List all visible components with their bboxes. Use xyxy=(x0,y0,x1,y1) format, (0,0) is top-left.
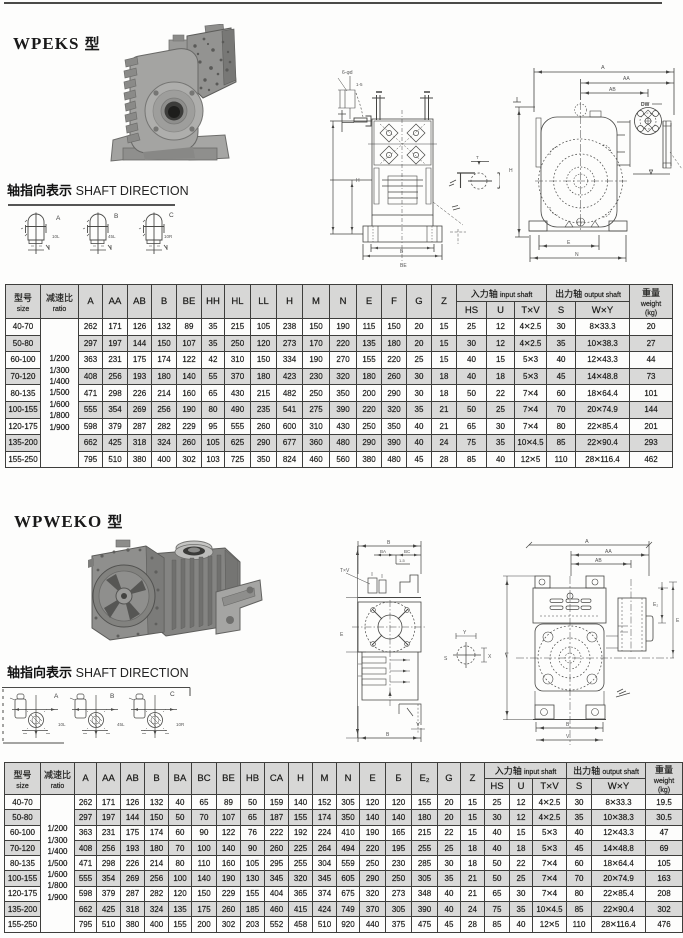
svg-text:E: E xyxy=(340,632,344,638)
svg-text:1-5: 1-5 xyxy=(399,558,406,563)
svg-text:H: H xyxy=(509,168,513,174)
svg-text:S: S xyxy=(444,656,448,662)
svg-text:B: B xyxy=(400,249,404,255)
svg-text:AB: AB xyxy=(609,87,616,93)
svg-text:C: C xyxy=(169,212,174,219)
svg-text:X: X xyxy=(488,654,492,660)
svg-text:B: B xyxy=(566,722,570,728)
svg-text:N: N xyxy=(575,252,579,258)
svg-text:BC: BC xyxy=(404,549,411,554)
svg-text:A: A xyxy=(56,215,61,222)
svg-text:B: B xyxy=(110,693,114,700)
svg-text:DW: DW xyxy=(641,102,650,108)
svg-text:A: A xyxy=(601,65,605,71)
svg-text:T×V: T×V xyxy=(340,568,350,574)
svg-text:10R: 10R xyxy=(164,234,173,239)
svg-text:E: E xyxy=(567,240,571,246)
svg-text:E₂: E₂ xyxy=(653,602,658,608)
svg-text:6-φd: 6-φd xyxy=(342,70,353,76)
svg-text:H: H xyxy=(356,178,360,184)
svg-text:BA: BA xyxy=(380,549,386,554)
svg-text:45L: 45L xyxy=(108,234,116,239)
svg-text:1-5: 1-5 xyxy=(356,82,363,87)
svg-text:V: V xyxy=(566,734,570,740)
svg-text:A: A xyxy=(54,693,59,700)
svg-text:B: B xyxy=(114,213,118,220)
svg-text:BE: BE xyxy=(400,263,407,269)
svg-text:A: A xyxy=(585,539,589,545)
svg-text:AA: AA xyxy=(605,549,612,555)
svg-text:B: B xyxy=(387,540,391,546)
svg-text:AB: AB xyxy=(595,558,602,564)
svg-text:Y: Y xyxy=(463,630,467,636)
svg-text:10L: 10L xyxy=(52,234,60,239)
svg-text:C: C xyxy=(170,691,175,698)
svg-text:E: E xyxy=(676,618,680,624)
svg-text:45L: 45L xyxy=(117,722,125,727)
svg-text:10L: 10L xyxy=(58,722,66,727)
svg-text:AA: AA xyxy=(623,76,630,82)
svg-text:10R: 10R xyxy=(176,722,185,727)
svg-text:T: T xyxy=(476,155,479,160)
svg-text:B: B xyxy=(386,732,390,738)
